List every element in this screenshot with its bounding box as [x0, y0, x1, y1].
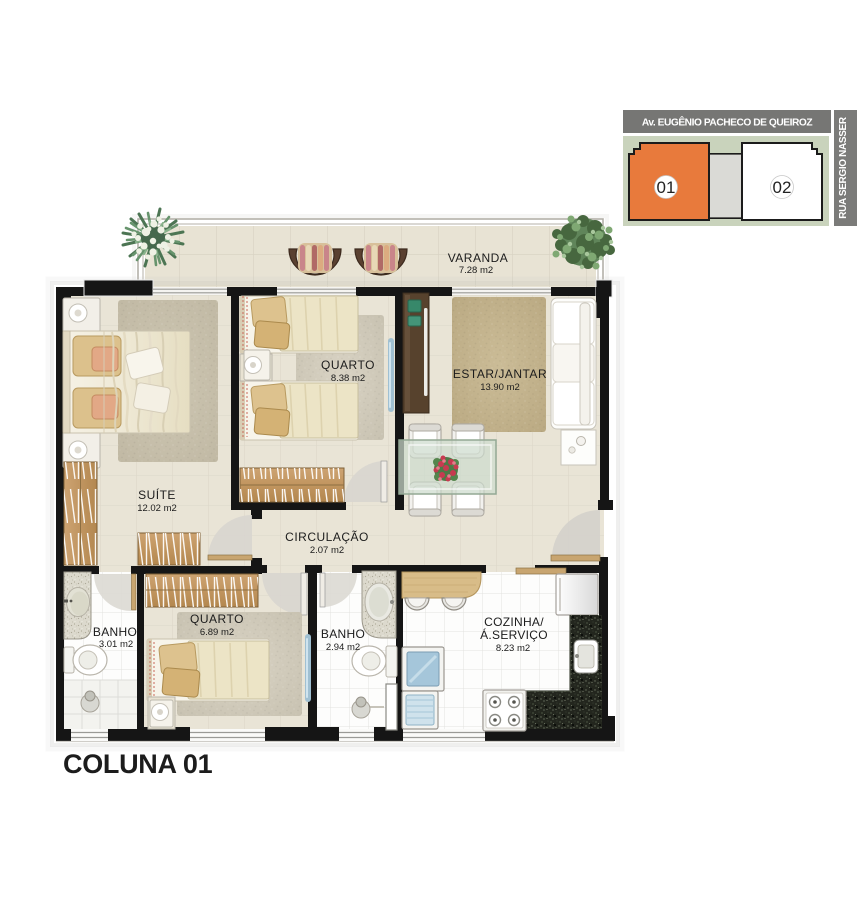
svg-text:QUARTO: QUARTO [321, 358, 375, 372]
svg-text:VARANDA: VARANDA [448, 251, 509, 265]
svg-text:2.94 m2: 2.94 m2 [326, 642, 360, 653]
svg-text:COLUNA 01: COLUNA 01 [63, 749, 213, 779]
svg-text:8.38 m2: 8.38 m2 [331, 373, 365, 384]
svg-text:RUA SERGIO NASSER: RUA SERGIO NASSER [838, 116, 849, 219]
svg-text:12.02 m2: 12.02 m2 [137, 503, 177, 514]
svg-text:BANHO: BANHO [93, 625, 137, 639]
svg-text:SUÍTE: SUÍTE [138, 487, 176, 502]
svg-text:13.90 m2: 13.90 m2 [480, 382, 520, 393]
svg-text:8.23 m2: 8.23 m2 [496, 643, 530, 654]
svg-text:02: 02 [773, 178, 792, 197]
svg-text:ESTAR/JANTAR: ESTAR/JANTAR [453, 367, 547, 381]
svg-text:6.89 m2: 6.89 m2 [200, 627, 234, 638]
svg-text:BANHO: BANHO [321, 627, 365, 641]
svg-text:QUARTO: QUARTO [190, 612, 244, 626]
svg-text:Á.SERVIÇO: Á.SERVIÇO [480, 627, 548, 642]
svg-text:01: 01 [657, 178, 676, 197]
svg-text:CIRCULAÇÃO: CIRCULAÇÃO [285, 530, 369, 544]
svg-text:2.07 m2: 2.07 m2 [310, 545, 344, 556]
svg-text:7.28 m2: 7.28 m2 [459, 265, 493, 276]
svg-text:COZINHA/: COZINHA/ [484, 615, 544, 629]
svg-text:3.01 m2: 3.01 m2 [99, 639, 133, 650]
svg-text:Av. EUGÊNIO PACHECO DE QUEIROZ: Av. EUGÊNIO PACHECO DE QUEIROZ [642, 116, 812, 129]
